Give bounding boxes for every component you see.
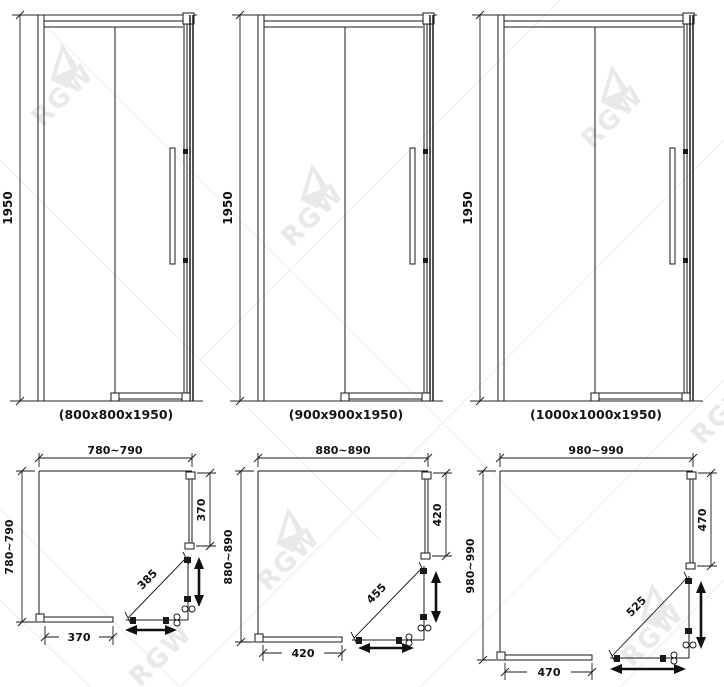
door-3-frame — [498, 13, 694, 401]
door-2-height-dim-label: 1950 — [221, 191, 235, 224]
plan-3-bottom-dimension: 470 — [501, 663, 596, 680]
plan-3-top-dimension: 980~990 — [496, 444, 697, 467]
door-3-roller-right — [682, 393, 690, 401]
door-3-roller-left — [591, 393, 599, 401]
door-1-roller-right — [182, 393, 190, 401]
plan-2-left-dimension: 880~890 — [222, 467, 254, 646]
plan-2-right-dimension: 420 — [431, 469, 452, 560]
brand-watermark: RGW — [559, 64, 650, 155]
plan-2-sliding-doors — [352, 566, 431, 646]
technical-drawing: RGW RGW RGW RGW RGW RGW RGW 1950 — [0, 0, 724, 687]
plan-1-top-dim-label: 780~790 — [87, 444, 142, 457]
plan-3-left-dim-label: 980~990 — [464, 538, 477, 593]
plan-2-diagonal-dimension: 455 — [351, 562, 425, 644]
shower-enclosure-dimension-sheet: RGW RGW RGW RGW RGW RGW RGW 1950 — [0, 0, 724, 687]
plan-2-top-dim-label: 880~890 — [315, 444, 370, 457]
door-2-roller-left — [341, 393, 349, 401]
door-2-height-dimension: 1950 — [221, 11, 244, 405]
plan-3-bottom-dim-label: 470 — [538, 666, 561, 679]
door-1-height-dim-label: 1950 — [1, 191, 15, 224]
plan-3-right-dim-label: 470 — [696, 508, 709, 531]
plan-2-left-dim-label: 880~890 — [222, 529, 235, 584]
plan-1-sliding-doors — [126, 556, 195, 626]
plan-1-right-dimension: 370 — [195, 469, 216, 550]
plan-2-slide-arrow-horizontal — [358, 643, 414, 653]
door-elevation-3: 1950 (1000x1000x1950) — [461, 11, 703, 422]
plan-1-bottom-dimension: 370 — [41, 626, 117, 645]
plan-1-right-dim-label: 370 — [195, 498, 208, 521]
door-1-caption: (800x800x1950) — [59, 407, 174, 422]
plan-3-left-dimension: 980~990 — [464, 467, 496, 664]
door-2-caption: (900x900x1950) — [289, 407, 404, 422]
plan-1-slide-arrow-vertical — [194, 557, 204, 607]
brand-watermark: RGW — [235, 506, 326, 597]
plan-view-3: 980~990 980~990 470 525 470 — [464, 444, 717, 680]
door-2-roller-right — [422, 393, 430, 401]
plan-3-slide-arrow-horizontal — [610, 664, 686, 674]
plan-2-bottom-dimension: 420 — [259, 645, 346, 661]
plan-3-slide-arrow-vertical — [696, 581, 706, 649]
plan-1-left-dimension: 780~790 — [3, 467, 35, 626]
door-3-height-dim-label: 1950 — [461, 191, 475, 224]
plan-1-left-dim-label: 780~790 — [3, 519, 16, 574]
door-2-handle — [410, 148, 428, 264]
plan-1-diagonal-dimension: 385 — [125, 552, 189, 624]
watermark-layer: RGW RGW RGW RGW RGW RGW RGW — [0, 0, 724, 687]
plan-view-2: 880~890 880~890 420 455 420 — [222, 444, 452, 661]
plan-1-top-dimension: 780~790 — [35, 444, 196, 467]
plan-3-right-dimension: 470 — [696, 469, 717, 570]
door-1-height-dimension: 1950 — [1, 11, 24, 405]
plan-2-top-dimension: 880~890 — [254, 444, 432, 467]
plan-2-right-dim-label: 420 — [431, 503, 444, 526]
plan-3-top-dim-label: 980~990 — [568, 444, 623, 457]
plan-2-diagonal-dim-label: 455 — [364, 581, 389, 607]
door-3-handle — [670, 148, 688, 264]
brand-watermark: RGW — [259, 162, 350, 253]
plan-1-bottom-dim-label: 370 — [68, 631, 91, 644]
door-3-caption: (1000x1000x1950) — [530, 407, 662, 422]
door-1-roller-left — [111, 393, 119, 401]
plan-2-bottom-dim-label: 420 — [292, 647, 315, 660]
door-3-height-dimension: 1950 — [461, 11, 484, 405]
plan-2-slide-arrow-vertical — [431, 571, 441, 623]
brand-watermark: RGW — [9, 42, 100, 133]
door-elevation-1: 1950 (800x800x1950) — [1, 11, 203, 422]
door-2-frame — [258, 13, 434, 401]
